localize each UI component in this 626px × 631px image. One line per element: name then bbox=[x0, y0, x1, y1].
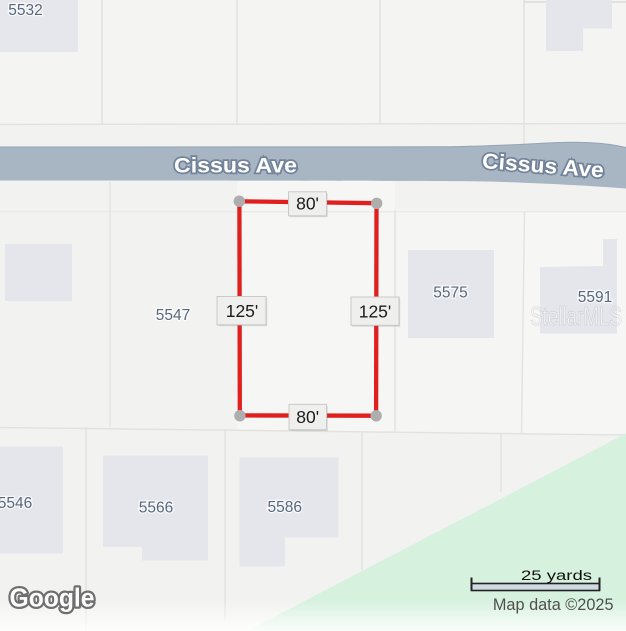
svg-text:Map data ©2025: Map data ©2025 bbox=[493, 596, 614, 614]
svg-text:5575: 5575 bbox=[433, 285, 467, 302]
svg-text:Cissus Ave: Cissus Ave bbox=[174, 153, 297, 177]
svg-text:25 yards: 25 yards bbox=[521, 568, 592, 583]
svg-text:5546: 5546 bbox=[0, 495, 32, 512]
svg-text:5547: 5547 bbox=[156, 307, 190, 324]
svg-text:5532: 5532 bbox=[8, 2, 42, 19]
svg-text:80': 80' bbox=[296, 407, 319, 427]
svg-text:125': 125' bbox=[226, 301, 259, 321]
svg-text:5566: 5566 bbox=[139, 500, 173, 517]
svg-text:80': 80' bbox=[296, 194, 319, 214]
svg-text:Google: Google bbox=[10, 583, 95, 613]
svg-text:StellarMLS: StellarMLS bbox=[530, 301, 622, 331]
svg-text:5586: 5586 bbox=[268, 499, 302, 516]
svg-text:125': 125' bbox=[359, 301, 392, 321]
